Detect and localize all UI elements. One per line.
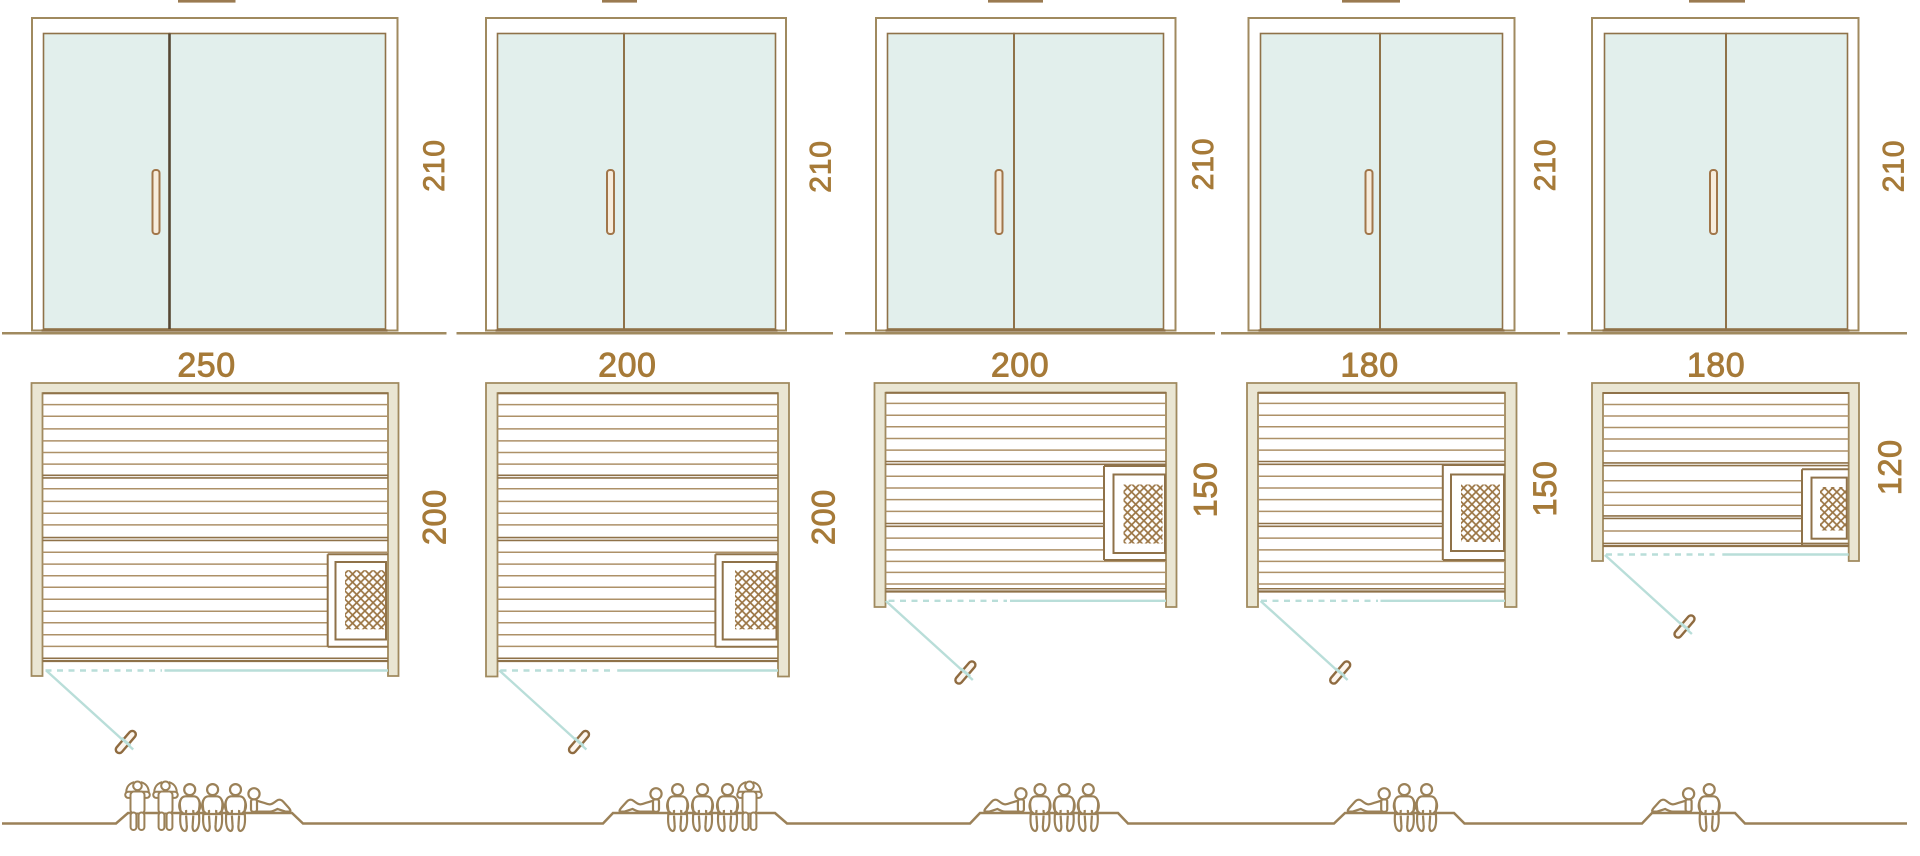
svg-text:180: 180 <box>1687 346 1745 384</box>
svg-text:210: 210 <box>805 140 838 192</box>
svg-text:200: 200 <box>598 346 656 384</box>
svg-text:210: 210 <box>1187 138 1220 190</box>
svg-text:180: 180 <box>1340 346 1398 384</box>
svg-text:120: 120 <box>1872 439 1908 495</box>
svg-text:210: 210 <box>418 139 451 191</box>
svg-text:250: 250 <box>177 346 235 384</box>
svg-text:210: 210 <box>1878 140 1911 192</box>
svg-text:150: 150 <box>1527 461 1563 517</box>
svg-text:150: 150 <box>1188 462 1224 518</box>
svg-text:200: 200 <box>416 489 452 545</box>
svg-text:210: 210 <box>1529 139 1562 191</box>
svg-text:200: 200 <box>991 346 1049 384</box>
svg-text:200: 200 <box>805 489 841 545</box>
